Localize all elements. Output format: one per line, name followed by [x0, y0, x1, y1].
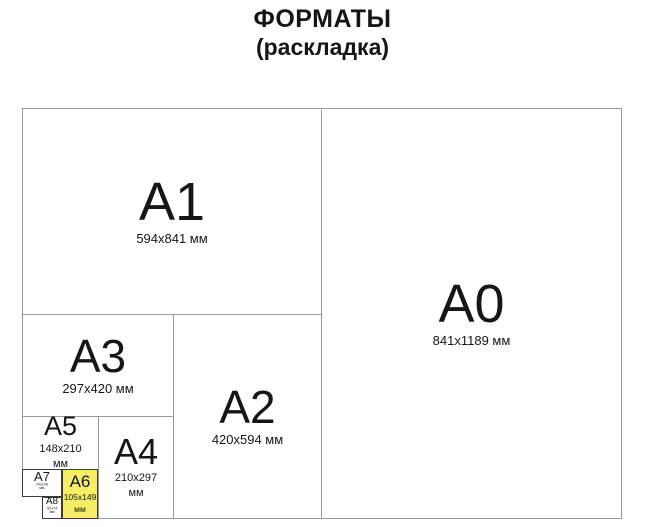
format-cell-a0: A0 841x1189 мм — [322, 108, 622, 519]
format-label-a1: A1 — [139, 177, 205, 228]
page-title: ФОРМАТЫ (раскладка) — [0, 4, 645, 62]
page: ФОРМАТЫ (раскладка) A1 594x841 мм A0 841… — [0, 0, 645, 527]
format-label-a7: A7 — [34, 470, 50, 483]
format-size-a4-line2: мм — [115, 486, 157, 501]
format-size-a8-line2: мм — [47, 511, 57, 515]
format-cell-a3: A3 297x420 мм — [22, 315, 174, 417]
format-cell-a1: A1 594x841 мм — [22, 108, 322, 315]
format-cell-a8: A8 52x74 мм — [42, 497, 62, 519]
format-label-a8: A8 — [46, 497, 58, 507]
format-size-a2: 420x594 мм — [212, 432, 283, 447]
format-cell-a7: A7 74x105 мм — [22, 469, 62, 497]
format-label-a5: A5 — [44, 414, 77, 440]
format-size-a8: 52x74 мм — [47, 507, 57, 515]
format-size-a3: 297x420 мм — [62, 381, 133, 396]
format-size-a6-line1: 105x149 — [64, 492, 97, 503]
format-size-a6-line2: мм — [64, 504, 97, 515]
format-size-a7-line2: мм — [36, 487, 48, 491]
format-size-a5: 148x210 мм — [39, 442, 81, 472]
format-size-a1: 594x841 мм — [136, 231, 207, 246]
format-size-a7: 74x105 мм — [36, 483, 48, 491]
page-title-line1: ФОРМАТЫ — [0, 4, 645, 34]
format-size-a4: 210x297 мм — [115, 471, 157, 501]
page-title-line2: (раскладка) — [0, 34, 645, 62]
format-cell-a4: A4 210x297 мм — [98, 417, 174, 519]
format-label-a0: A0 — [438, 279, 504, 330]
format-size-a0: 841x1189 мм — [433, 333, 511, 348]
format-cell-a6-highlighted: A6 105x149 мм — [62, 469, 98, 519]
format-size-a5-line1: 148x210 — [39, 442, 81, 457]
format-label-a3: A3 — [70, 335, 126, 379]
format-cell-a2: A2 420x594 мм — [174, 315, 322, 519]
format-size-a4-line1: 210x297 — [115, 471, 157, 486]
paper-format-diagram: A1 594x841 мм A0 841x1189 мм A3 297x420 … — [22, 108, 622, 519]
format-label-a4: A4 — [114, 435, 158, 469]
format-label-a6: A6 — [70, 473, 91, 490]
format-label-a2: A2 — [219, 386, 275, 430]
format-cell-a5: A5 148x210 мм — [22, 417, 98, 469]
format-size-a6: 105x149 мм — [64, 492, 97, 515]
